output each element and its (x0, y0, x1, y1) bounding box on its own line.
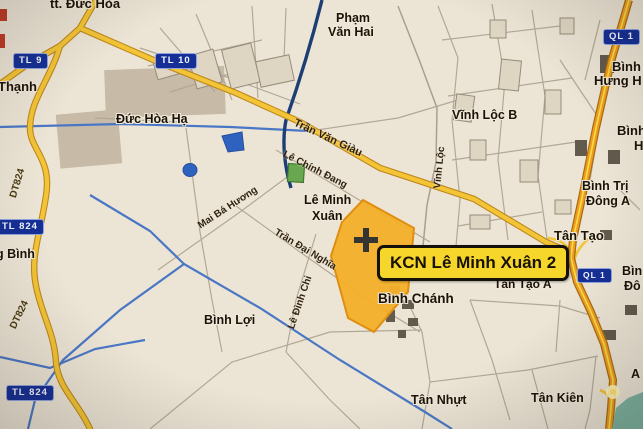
place-binh-hung-hoa-line2: Hưng H (594, 74, 642, 88)
place-tt-duc-hoa: tt. Đức Hòa (50, 0, 120, 11)
place-tan-kien: Tân Kiên (531, 392, 584, 405)
place-tan-nhut: Tân Nhựt (411, 394, 467, 407)
place-binh-chanh: Bình Chánh (378, 292, 454, 306)
road-sign-tl824-lower: TL 824 (6, 385, 54, 401)
place-pham-van-hai-line2: Văn Hai (328, 26, 374, 39)
place-le-minh-xuan-line2: Xuân (312, 210, 343, 223)
place-binh-h-line1: Bình (617, 124, 643, 138)
red-edge-marks (0, 9, 7, 48)
place-g-binh-partial: g Bình (0, 248, 35, 261)
place-binh-tri-dong-a-line1: Bình Trị (582, 180, 629, 193)
map-canvas[interactable]: tt. Đức Hòa Thạnh Phạm Văn Hai Đức Hòa H… (0, 0, 643, 429)
road-sign-tl10: TL 10 (155, 53, 197, 69)
place-le-minh-xuan-line1: Lê Minh (304, 194, 351, 207)
place-binh-tri-dong-a-line2: Đông A (586, 195, 630, 208)
place-binh-loi: Bình Lợi (204, 314, 255, 327)
place-binh-h-line2: H (634, 139, 643, 153)
place-binh-hung-hoa-line1: Bình (612, 60, 641, 74)
place-thanh-partial: Thạnh (0, 80, 37, 94)
place-pham-van-hai-line1: Phạm (336, 12, 370, 25)
road-sign-ql1-mid: QL 1 (577, 268, 612, 283)
place-duc-hoa-ha: Đức Hòa Hạ (116, 113, 188, 126)
road-sign-tl9: TL 9 (13, 53, 48, 69)
place-a-partial: A (631, 368, 640, 381)
road-sign-tl824-upper: TL 824 (0, 219, 44, 235)
kcn-callout: KCN Lê Minh Xuân 2 (377, 245, 569, 281)
vinh-loc-road (398, 6, 437, 246)
ponds (183, 132, 244, 177)
road-sign-ql1-top: QL 1 (603, 29, 640, 45)
place-vinh-loc-b: Vĩnh Lộc B (452, 109, 517, 122)
place-binh-partial-right-line2: Đô (624, 280, 641, 293)
place-tan-tao: Tân Tạo (554, 229, 604, 243)
place-binh-partial-right-line1: Bìn (622, 265, 642, 278)
